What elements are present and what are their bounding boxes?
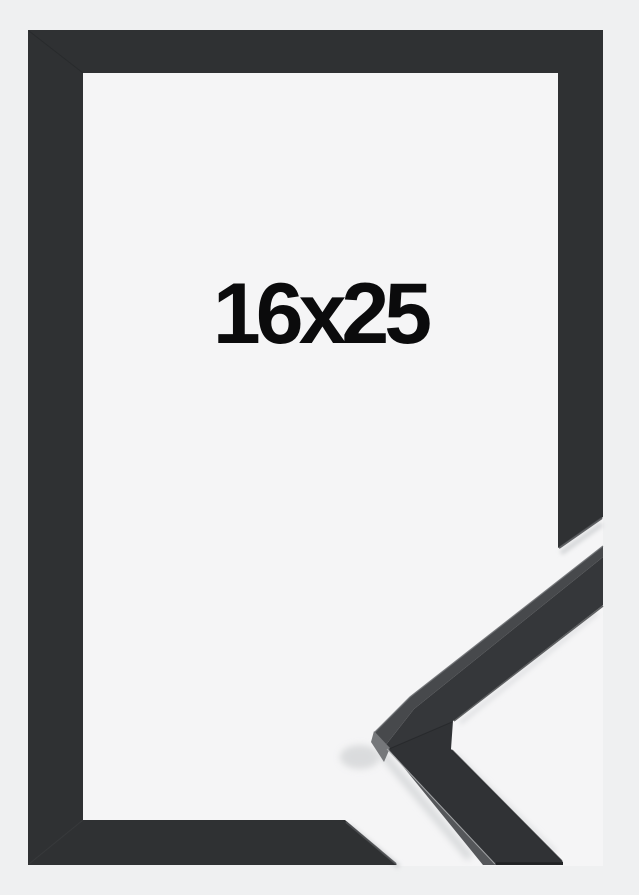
frame-backing-paper — [83, 73, 603, 866]
size-label: 16x25 — [213, 266, 430, 362]
framed-picture-image: 16x25 — [0, 0, 639, 895]
shadow-sample-apex — [340, 745, 380, 769]
product-photo: 16x25 — [0, 0, 639, 895]
